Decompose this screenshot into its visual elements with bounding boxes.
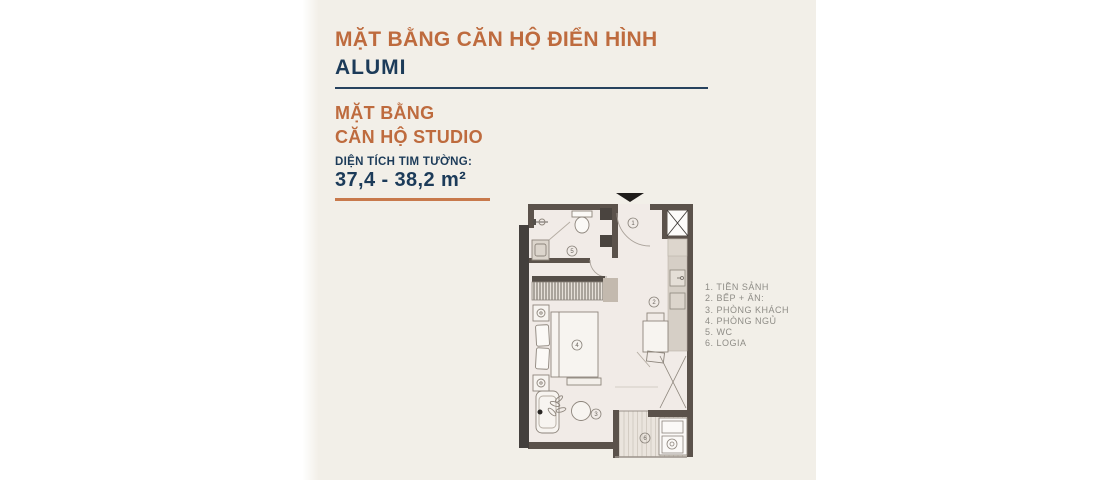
entry-arrow-icon [616, 193, 644, 202]
coffee-table [572, 402, 591, 421]
subtitle-line1: MẶT BẰNG [335, 103, 434, 124]
legend-item-2: 2. BẾP + ĂN: [705, 293, 789, 304]
legend-item-3: 3. PHÒNG KHÁCH [705, 305, 789, 316]
cooktop [670, 293, 685, 309]
legend-item-6: 6. LOGIA [705, 338, 789, 349]
subtitle-line2: CĂN HỘ STUDIO [335, 127, 483, 148]
wardrobe [532, 276, 618, 302]
party-wall [519, 225, 529, 448]
room-legend: 1. TIỀN SẢNH 2. BẾP + ĂN: 3. PHÒNG KHÁCH… [705, 282, 789, 350]
navy-divider [335, 87, 708, 89]
page-title: MẶT BẰNG CĂN HỘ ĐIỂN HÌNH [335, 28, 658, 52]
floor-plan: 1 2 3 4 5 6 [515, 190, 705, 470]
floor-lamp [538, 410, 543, 415]
shaft [667, 210, 688, 236]
legend-item-5: 5. WC [705, 327, 789, 338]
legend-item-4: 4. PHÒNG NGỦ [705, 316, 789, 327]
page: MẶT BẰNG CĂN HỘ ĐIỂN HÌNH ALUMI MẶT BẰNG… [0, 0, 1120, 480]
orange-divider [335, 198, 490, 201]
brand-name: ALUMI [335, 56, 407, 80]
kitchen-counter [668, 239, 687, 351]
bedroom-furniture [533, 305, 601, 391]
area-value: 37,4 - 38,2 m² [335, 169, 466, 192]
legend-item-1: 1. TIỀN SẢNH [705, 282, 789, 293]
area-label: DIỆN TÍCH TIM TƯỜNG: [335, 156, 472, 168]
